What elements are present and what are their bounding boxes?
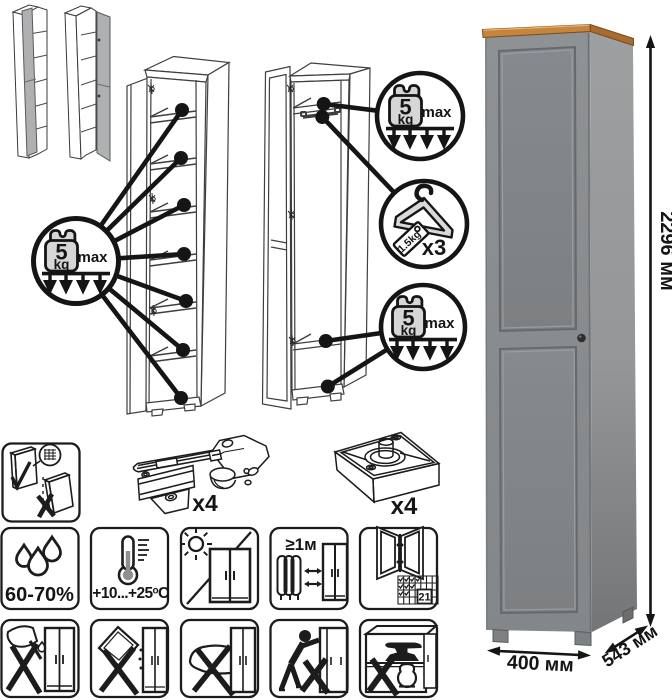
svg-text:+10...+25oC: +10...+25oC (92, 585, 169, 602)
svg-text:21: 21 (418, 592, 430, 604)
svg-text:2296 мм: 2296 мм (656, 211, 672, 291)
svg-text:x4: x4 (192, 490, 218, 516)
svg-text:x4: x4 (391, 493, 418, 520)
svg-text:x3: x3 (422, 235, 446, 260)
svg-text:60-70%: 60-70% (5, 584, 74, 606)
svg-text:400 мм: 400 мм (506, 651, 574, 676)
svg-text:≥1м: ≥1м (285, 535, 316, 554)
